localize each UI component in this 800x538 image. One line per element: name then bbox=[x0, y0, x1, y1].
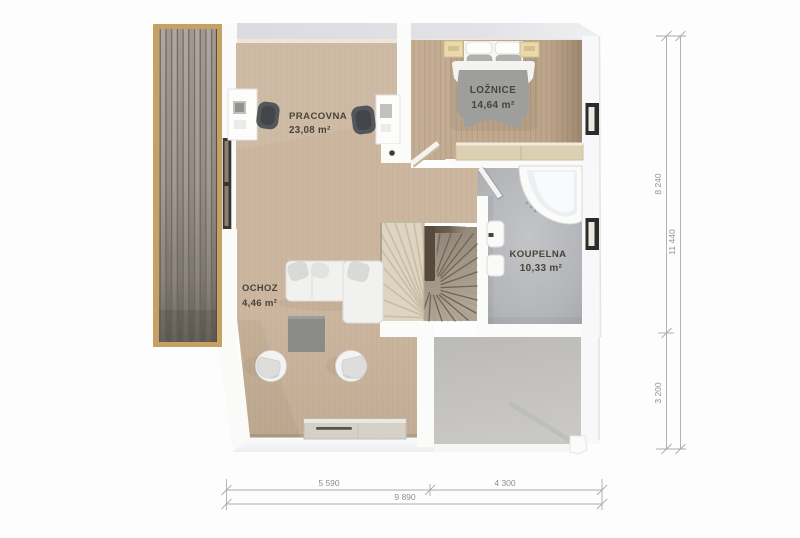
svg-text:KOUPELNA: KOUPELNA bbox=[509, 249, 566, 260]
svg-text:4 300: 4 300 bbox=[494, 478, 516, 488]
svg-text:5 590: 5 590 bbox=[318, 478, 340, 488]
svg-text:4,46 m²: 4,46 m² bbox=[242, 298, 277, 309]
svg-text:9 890: 9 890 bbox=[394, 492, 416, 502]
svg-text:11 440: 11 440 bbox=[667, 229, 677, 255]
svg-text:PRACOVNA: PRACOVNA bbox=[289, 111, 347, 122]
svg-text:10,33 m²: 10,33 m² bbox=[520, 263, 563, 274]
svg-text:LOŽNICE: LOŽNICE bbox=[470, 84, 517, 96]
svg-text:14,64 m²: 14,64 m² bbox=[471, 100, 514, 111]
svg-text:3 200: 3 200 bbox=[653, 382, 663, 404]
svg-text:23,08 m²: 23,08 m² bbox=[289, 125, 331, 136]
svg-text:OCHOZ: OCHOZ bbox=[242, 282, 278, 293]
svg-text:8 240: 8 240 bbox=[653, 173, 663, 195]
